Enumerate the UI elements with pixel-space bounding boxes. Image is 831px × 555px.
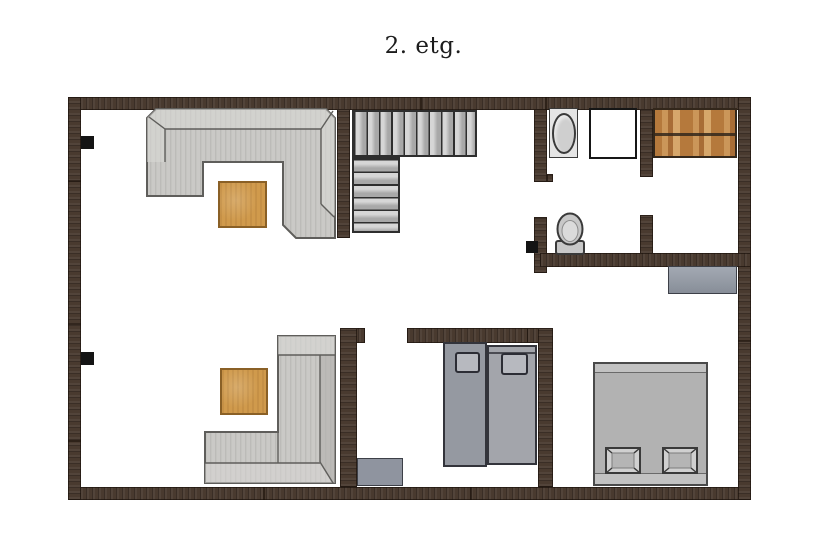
bed-pillow-right bbox=[663, 448, 697, 473]
sofa-front-strip bbox=[205, 463, 333, 483]
wall-seam bbox=[68, 323, 81, 325]
wall-seam bbox=[470, 487, 472, 500]
sofa-top-cushion bbox=[278, 336, 335, 355]
wardrobe-cabinet bbox=[653, 108, 737, 158]
bathroom-sink bbox=[549, 108, 578, 158]
sink-basin bbox=[552, 113, 576, 154]
wall-seam bbox=[420, 97, 422, 110]
floor-title: 2. etg. bbox=[0, 33, 831, 59]
sofa-back-band bbox=[320, 355, 335, 483]
wall-seam bbox=[545, 97, 547, 110]
outer-wall-bottom bbox=[68, 487, 751, 500]
wall-seam bbox=[263, 487, 265, 500]
cabinet-divider bbox=[655, 133, 735, 136]
wall-socket-marker bbox=[526, 241, 538, 253]
wall-bathroom-left-nub bbox=[547, 174, 553, 182]
wall-bathroom-left-upper bbox=[534, 109, 547, 182]
wall-bathroom-right-lower bbox=[640, 215, 653, 254]
coffee-table-living bbox=[218, 181, 267, 228]
toilet bbox=[550, 210, 590, 258]
floor-plan-page: 2. etg. bbox=[0, 0, 831, 555]
wall-twinroom-left bbox=[340, 328, 357, 487]
nightstand bbox=[357, 458, 403, 486]
wall-seam bbox=[738, 340, 751, 342]
wall-seam bbox=[68, 180, 81, 182]
wall-socket-marker bbox=[81, 136, 94, 149]
coffee-table-lounge bbox=[220, 368, 268, 415]
wall-bathroom-right-upper bbox=[640, 109, 653, 177]
wall-seam bbox=[68, 440, 81, 442]
wall-twinroom-top bbox=[407, 328, 543, 343]
twin-pillow-right bbox=[501, 353, 528, 375]
twin-pillow-left bbox=[455, 352, 480, 373]
double-bed-pillows bbox=[593, 440, 708, 482]
outer-wall-right bbox=[738, 97, 751, 500]
bed-pillow-left bbox=[606, 448, 640, 473]
staircase-lower-flight bbox=[352, 157, 400, 233]
shower-cabin bbox=[589, 108, 637, 159]
hall-dresser bbox=[668, 266, 737, 294]
bed-foot-strip bbox=[595, 364, 706, 373]
wall-socket-marker bbox=[81, 352, 94, 365]
staircase-upper-flight bbox=[352, 110, 477, 157]
wall-twinroom-right bbox=[538, 328, 553, 487]
